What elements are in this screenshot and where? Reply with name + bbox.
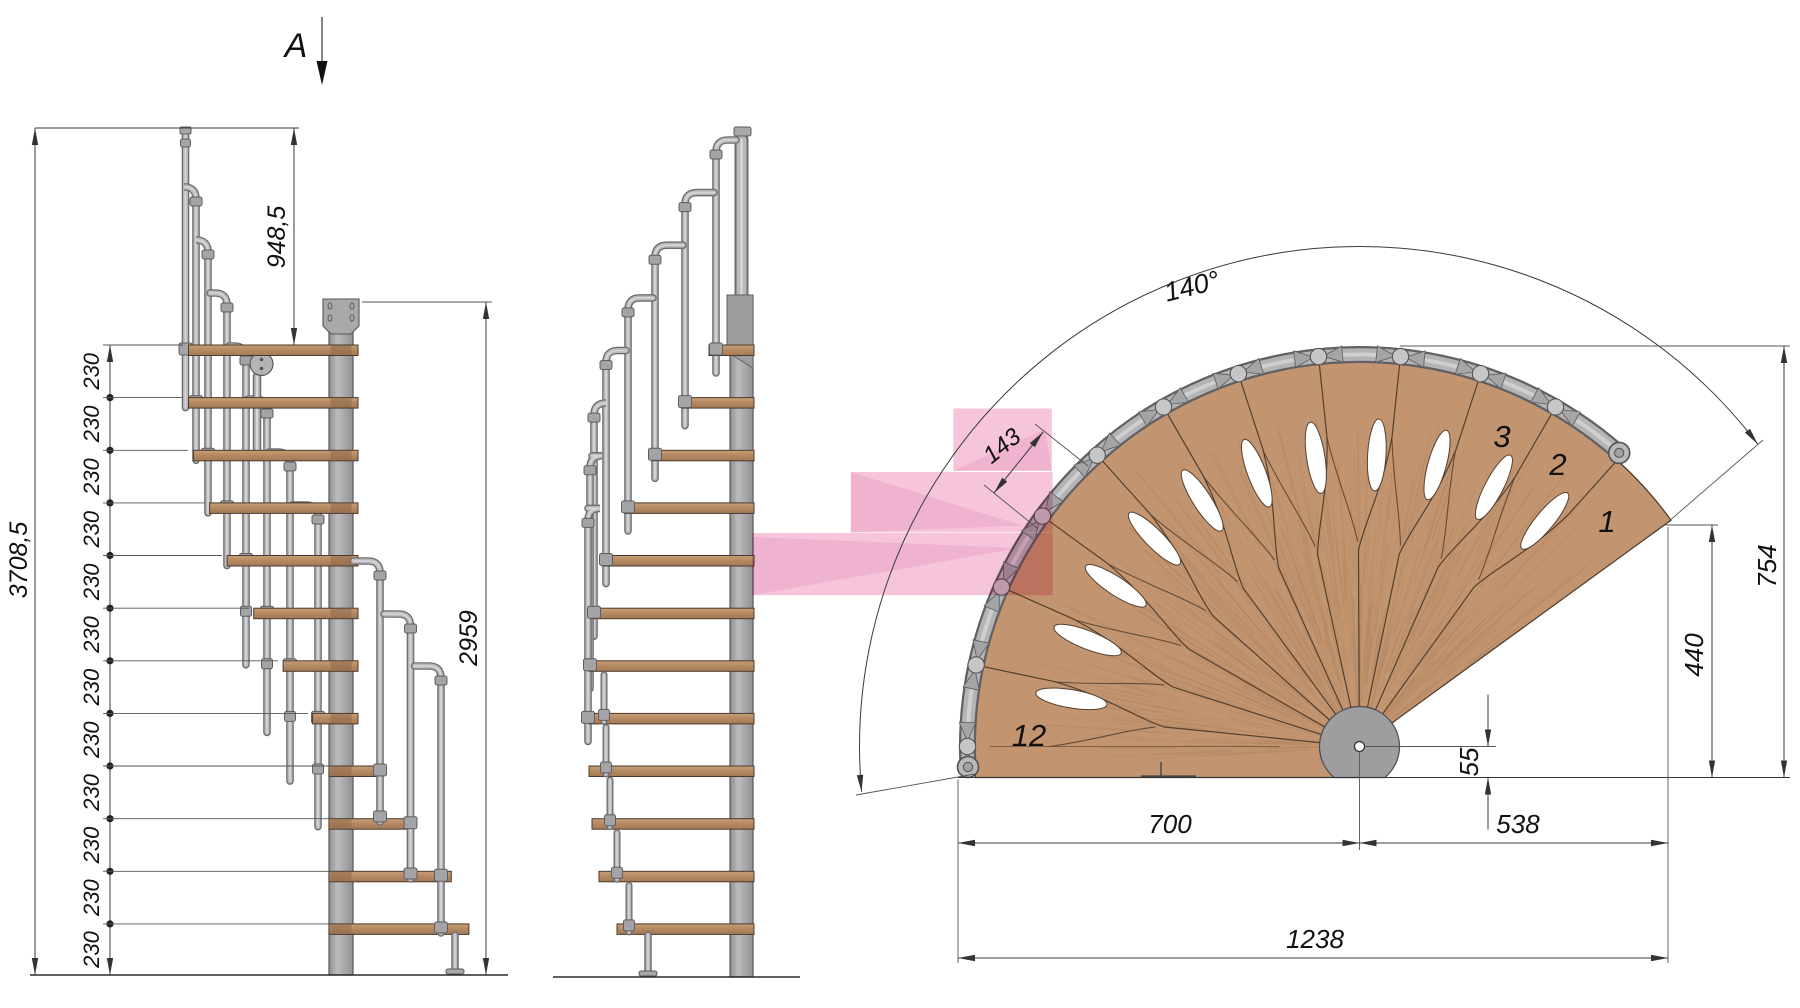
svg-text:3708,5: 3708,5: [5, 522, 33, 599]
svg-text:440: 440: [1679, 633, 1709, 677]
svg-text:1: 1: [1598, 504, 1615, 539]
svg-text:1238: 1238: [1286, 924, 1344, 954]
svg-text:12: 12: [1012, 718, 1046, 753]
svg-text:2959: 2959: [455, 610, 483, 667]
svg-text:230: 230: [79, 405, 104, 443]
svg-text:230: 230: [79, 615, 104, 653]
svg-text:230: 230: [79, 457, 104, 495]
svg-text:700: 700: [1148, 809, 1192, 839]
svg-text:230: 230: [79, 563, 104, 601]
svg-text:230: 230: [79, 826, 104, 864]
svg-text:55: 55: [1454, 747, 1484, 776]
svg-text:230: 230: [79, 510, 104, 548]
svg-text:A: A: [283, 27, 308, 65]
svg-text:230: 230: [79, 668, 104, 706]
svg-text:538: 538: [1496, 809, 1540, 839]
svg-text:754: 754: [1752, 544, 1782, 587]
svg-text:230: 230: [79, 878, 104, 916]
svg-text:230: 230: [79, 930, 104, 968]
svg-text:3: 3: [1493, 419, 1510, 454]
svg-text:2: 2: [1548, 447, 1566, 482]
svg-text:230: 230: [79, 352, 104, 390]
svg-text:230: 230: [79, 773, 104, 811]
svg-text:948,5: 948,5: [263, 206, 291, 269]
svg-text:230: 230: [79, 721, 104, 759]
